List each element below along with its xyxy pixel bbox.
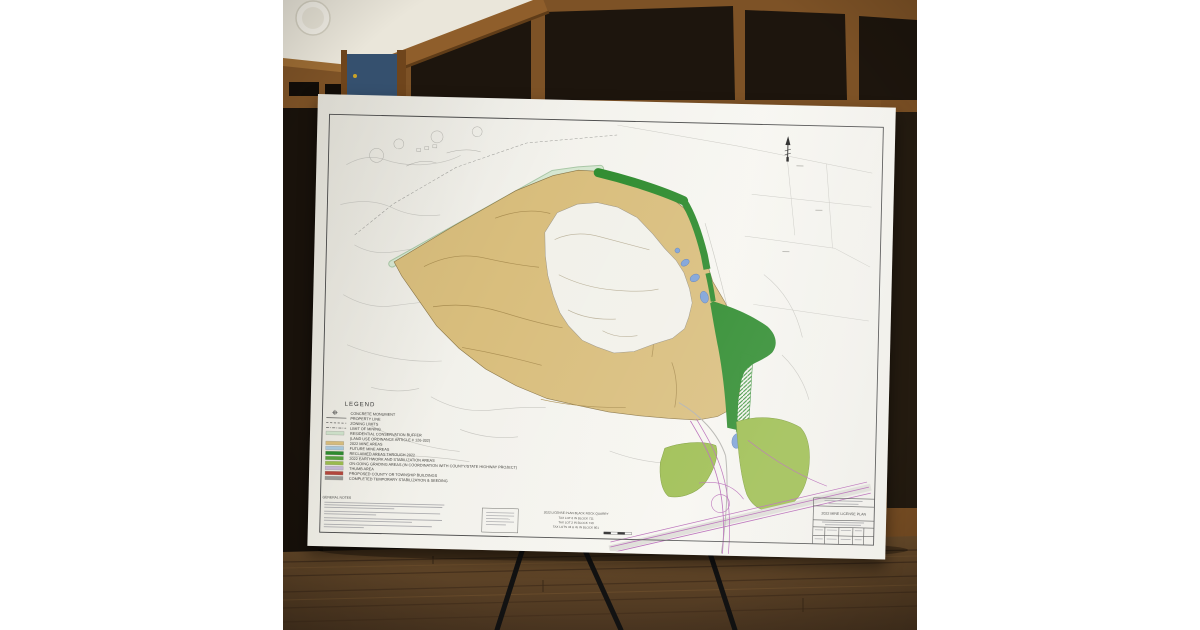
map-sheet: LEGEND CONCRETE MONUMENTPROPERTY LINEZON… bbox=[307, 94, 892, 557]
legend-item: FUTURE MINE AREAS bbox=[326, 446, 390, 452]
legend-title: LEGEND bbox=[345, 402, 376, 409]
legend-item-label: ON-GOING GRADING AREAS (IN COORDINATION … bbox=[349, 462, 518, 470]
legend: LEGEND CONCRETE MONUMENTPROPERTY LINEZON… bbox=[325, 401, 519, 485]
site-lot-line: TAX LOTS 43 & 45 IN BLOCK 801 bbox=[553, 525, 600, 530]
key-box bbox=[482, 508, 519, 533]
legend-item-label: LIMIT OF MINING bbox=[350, 427, 381, 432]
north-arrow-icon bbox=[785, 136, 792, 162]
legend-item-label: 2022 MINE AREAS bbox=[350, 442, 383, 447]
screenshot-root: LEGEND CONCRETE MONUMENTPROPERTY LINEZON… bbox=[0, 0, 1200, 630]
legend-item-label: ZONING LIMITS bbox=[350, 422, 379, 427]
legend-item-label: PROPERTY LINE bbox=[350, 417, 381, 422]
legend-item: ZONING LIMITS bbox=[326, 421, 379, 426]
site-title: 2022 LICENSE PLAN BLACK ROCK QUARRY bbox=[544, 510, 609, 516]
general-notes: GENERAL NOTES bbox=[322, 495, 445, 530]
legend-item-label: THUMB AREA bbox=[349, 467, 374, 472]
legend-item: CONCRETE MONUMENT bbox=[332, 410, 396, 417]
grading-areas bbox=[659, 415, 810, 512]
graphic-scale-bar bbox=[604, 532, 632, 535]
title-block: 2022 MINE LICENSE PLAN bbox=[813, 498, 875, 545]
site-info-block: 2022 LICENSE PLAN BLACK ROCK QUARRY TAX … bbox=[482, 508, 633, 536]
general-notes-title: GENERAL NOTES bbox=[322, 495, 352, 500]
pond bbox=[675, 248, 680, 253]
legend-item: LIMIT OF MINING bbox=[326, 426, 381, 431]
legend-item: THUMB AREA bbox=[325, 466, 374, 471]
map-board: LEGEND CONCRETE MONUMENTPROPERTY LINEZON… bbox=[307, 94, 895, 559]
plan-title: 2022 MINE LICENSE PLAN bbox=[821, 511, 866, 516]
legend-item: PROPERTY LINE bbox=[326, 416, 381, 421]
legend-item: 2022 MINE AREAS bbox=[326, 441, 383, 447]
residential-area-sketch bbox=[369, 124, 482, 168]
room-photo: LEGEND CONCRETE MONUMENTPROPERTY LINEZON… bbox=[283, 0, 917, 630]
